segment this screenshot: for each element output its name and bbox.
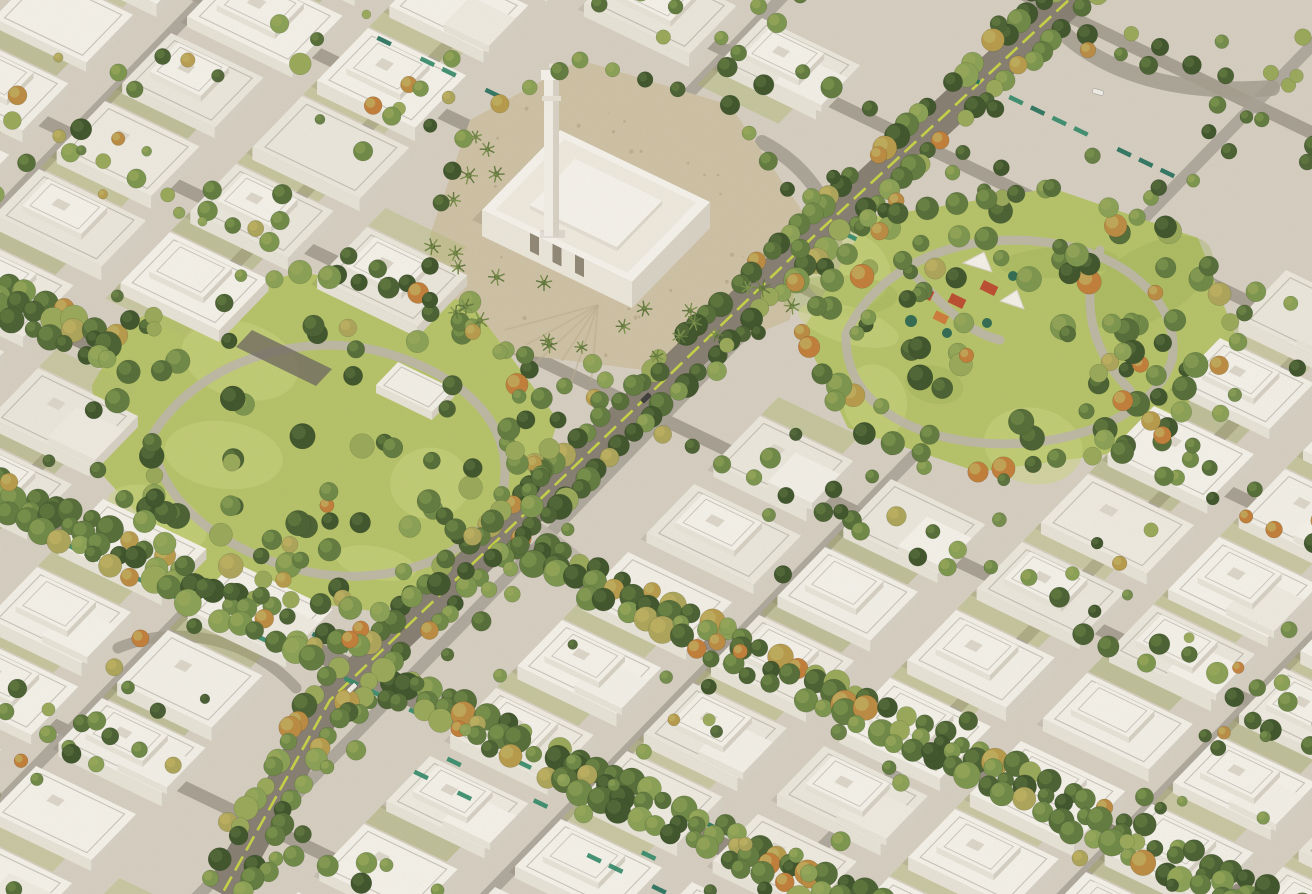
rendering-viewport: Aerial architectural rendering of a mast… — [0, 0, 1312, 894]
film-grain-overlay — [0, 0, 1312, 894]
aerial-masterplan-rendering — [0, 0, 1312, 894]
